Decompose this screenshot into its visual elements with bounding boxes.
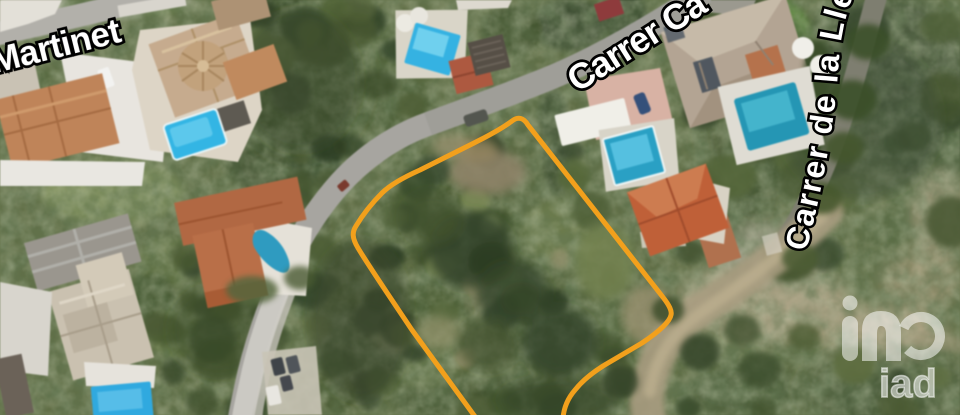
svg-text:iad: iad bbox=[879, 362, 937, 406]
